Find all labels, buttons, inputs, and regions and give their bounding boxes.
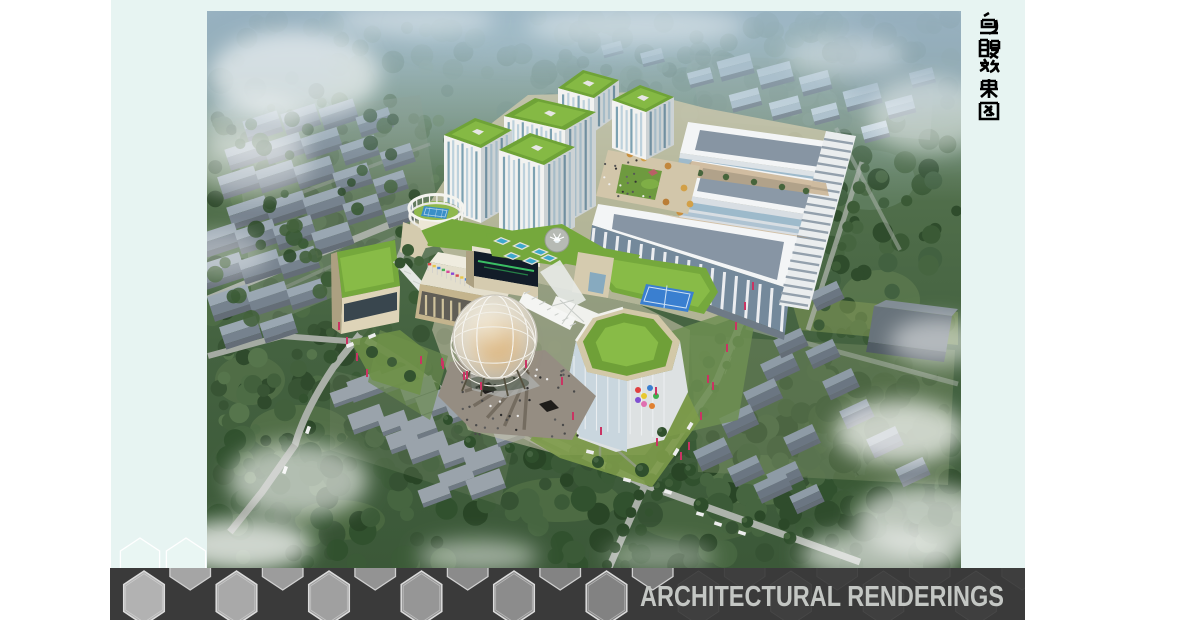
svg-text:ARCHITECTURAL RENDERINGS: ARCHITECTURAL RENDERINGS [640,581,1004,613]
